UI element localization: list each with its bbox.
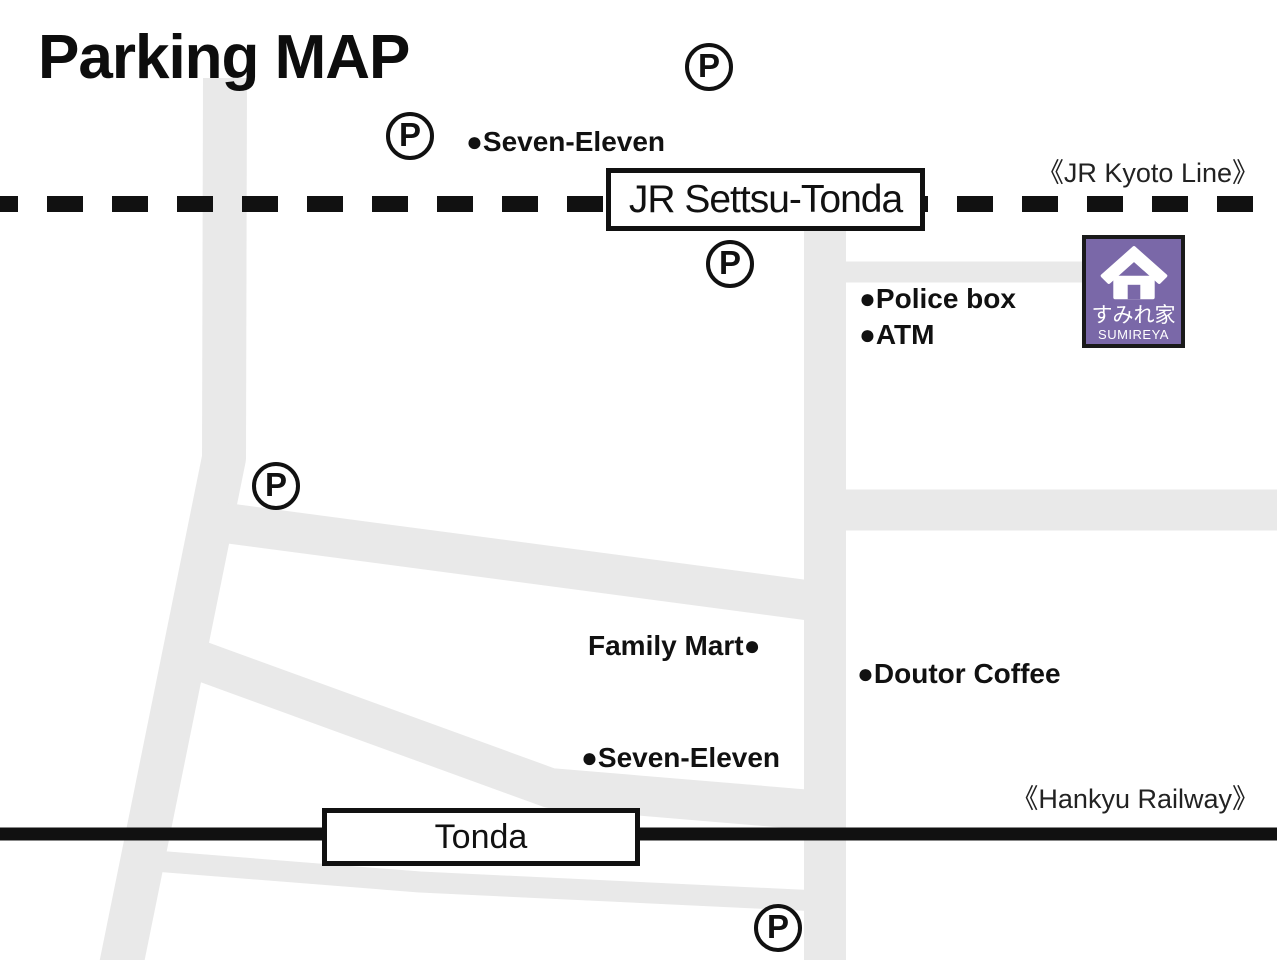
landmark-seven-eleven-north: ●Seven-Eleven [466,127,665,158]
landmark-atm: ●ATM [859,320,934,351]
parking-letter: P [698,47,720,85]
landmark-family-mart: Family Mart● [588,631,761,662]
road-diagonal-bottom [142,860,840,902]
page-title: Parking MAP [38,22,409,93]
sumireya-logo: すみれ家 SUMIREYA [1082,235,1185,348]
parking-letter: P [719,244,741,282]
jr-line-name: 《JR Kyoto Line》 [1037,159,1259,189]
logo-name-en: SUMIREYA [1098,327,1169,343]
tonda-station-box: Tonda [322,808,640,866]
road-diagonal-lower [176,652,836,812]
parking-letter: P [767,908,789,946]
jr-station-label: JR Settsu-Tonda [629,178,902,222]
jr-station-box: JR Settsu-Tonda [606,168,925,231]
parking-icon-northwest: P [386,112,434,160]
parking-icon-west: P [252,462,300,510]
house-icon [1098,245,1170,303]
logo-name-jp: すみれ家 [1092,304,1176,327]
parking-letter: P [399,116,421,154]
parking-letter: P [265,466,287,504]
tonda-station-label: Tonda [435,818,528,857]
parking-icon-south: P [754,904,802,952]
landmark-seven-eleven-south: ●Seven-Eleven [581,743,780,774]
landmark-police-box: ●Police box [859,284,1016,315]
road-diagonal-mid [218,522,836,604]
parking-icon-station: P [706,240,754,288]
hankyu-line-name: 《Hankyu Railway》 [1011,785,1259,815]
landmark-doutor-coffee: ●Doutor Coffee [857,659,1061,690]
parking-icon-north: P [685,43,733,91]
